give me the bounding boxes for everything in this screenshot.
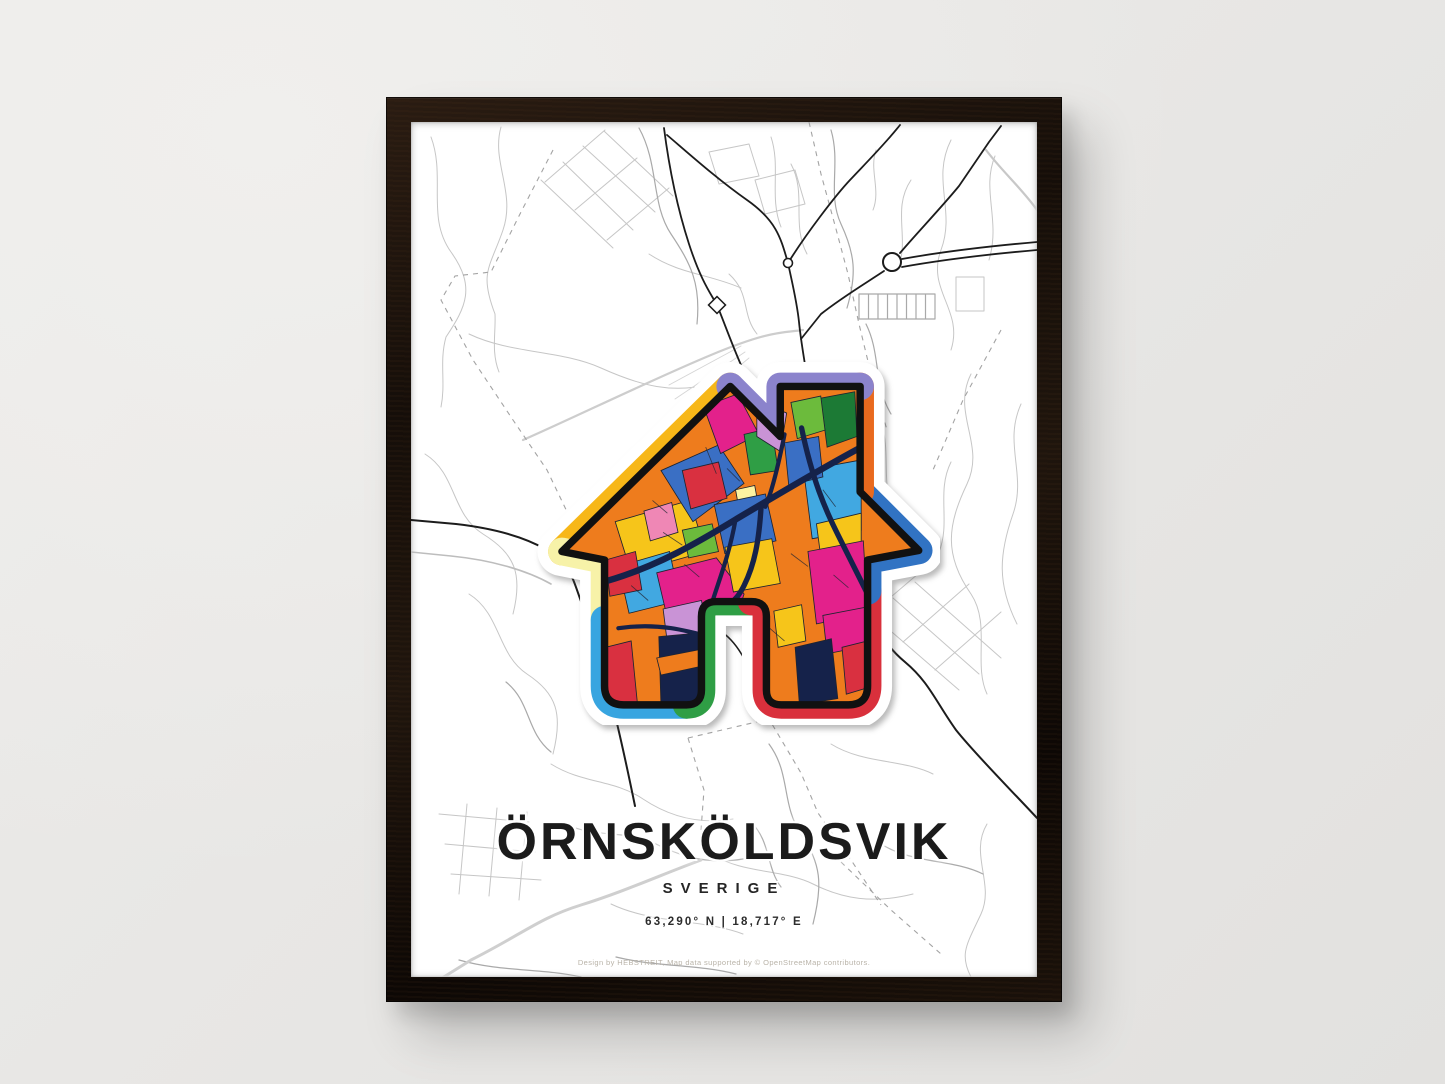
house-map-art	[530, 345, 940, 725]
credit-line: Design by HEBSTREIT, Map data supported …	[411, 958, 1037, 967]
country-subtitle: SVERIGE	[411, 880, 1037, 897]
city-title: ÖRNSKÖLDSVIK	[411, 812, 1037, 872]
picture-frame: ÖRNSKÖLDSVIK SVERIGE 63,290° N | 18,717°…	[386, 97, 1062, 1002]
wall: ÖRNSKÖLDSVIK SVERIGE 63,290° N | 18,717°…	[0, 0, 1445, 1084]
geo-coordinates: 63,290° N | 18,717° E	[411, 916, 1037, 928]
map-poster: ÖRNSKÖLDSVIK SVERIGE 63,290° N | 18,717°…	[411, 122, 1037, 977]
